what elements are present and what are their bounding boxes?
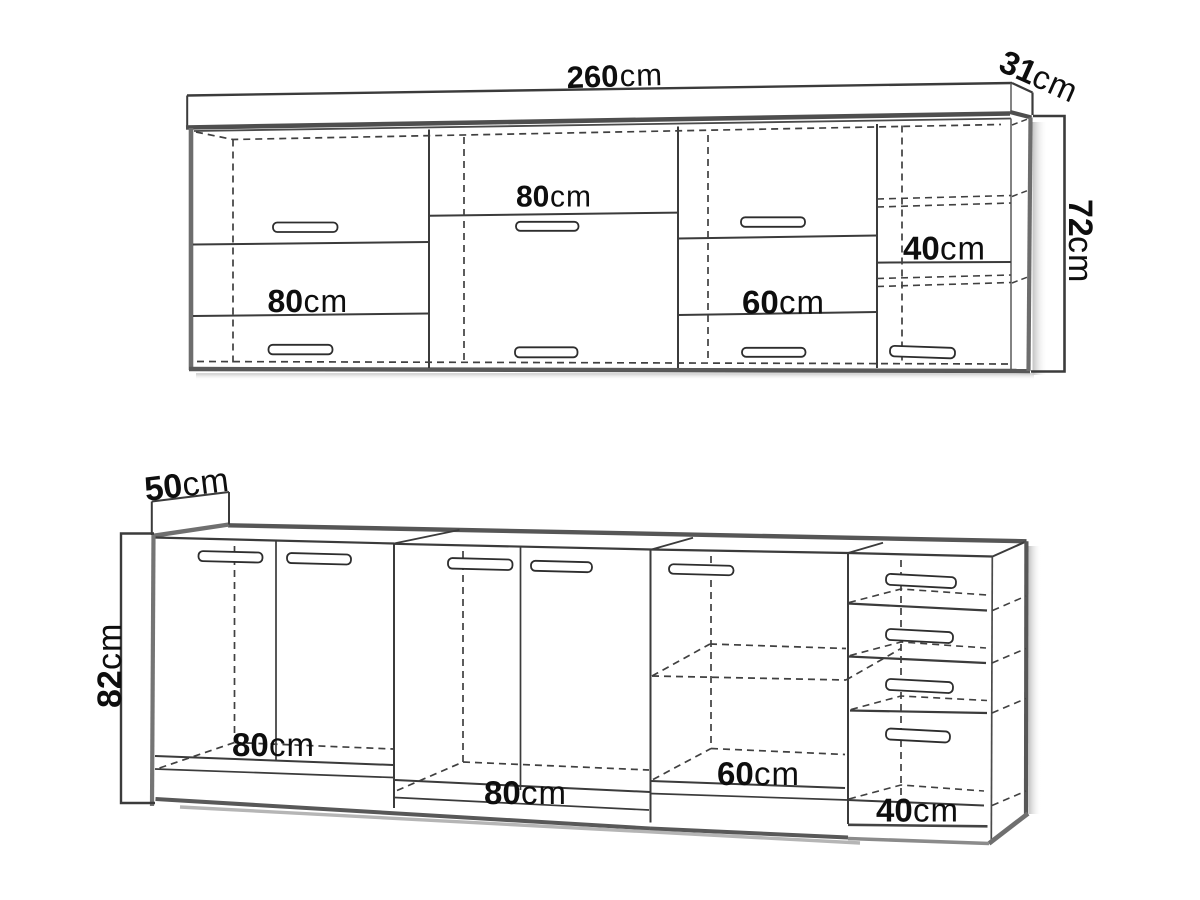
svg-text:cm: cm xyxy=(521,774,567,811)
svg-text:cm: cm xyxy=(304,283,349,319)
svg-text:cm: cm xyxy=(550,181,592,214)
svg-text:40: 40 xyxy=(903,230,940,267)
svg-text:cm: cm xyxy=(180,461,232,504)
svg-text:80: 80 xyxy=(484,774,521,811)
svg-text:cm: cm xyxy=(779,284,825,321)
svg-text:80: 80 xyxy=(232,726,269,763)
svg-text:260: 260 xyxy=(566,58,619,95)
svg-text:cm: cm xyxy=(940,230,986,267)
svg-text:72: 72 xyxy=(1061,199,1099,237)
svg-text:80: 80 xyxy=(268,283,304,319)
svg-text:cm: cm xyxy=(1061,236,1099,283)
svg-text:cm: cm xyxy=(269,726,315,763)
svg-text:60: 60 xyxy=(717,755,754,792)
svg-text:82: 82 xyxy=(91,670,129,708)
svg-text:50: 50 xyxy=(142,467,184,509)
svg-text:cm: cm xyxy=(619,57,663,93)
svg-text:60: 60 xyxy=(742,284,779,321)
svg-text:cm: cm xyxy=(913,792,959,829)
svg-text:cm: cm xyxy=(91,623,129,670)
svg-text:cm: cm xyxy=(754,755,800,792)
svg-text:80: 80 xyxy=(516,181,549,214)
svg-text:40: 40 xyxy=(876,792,913,829)
